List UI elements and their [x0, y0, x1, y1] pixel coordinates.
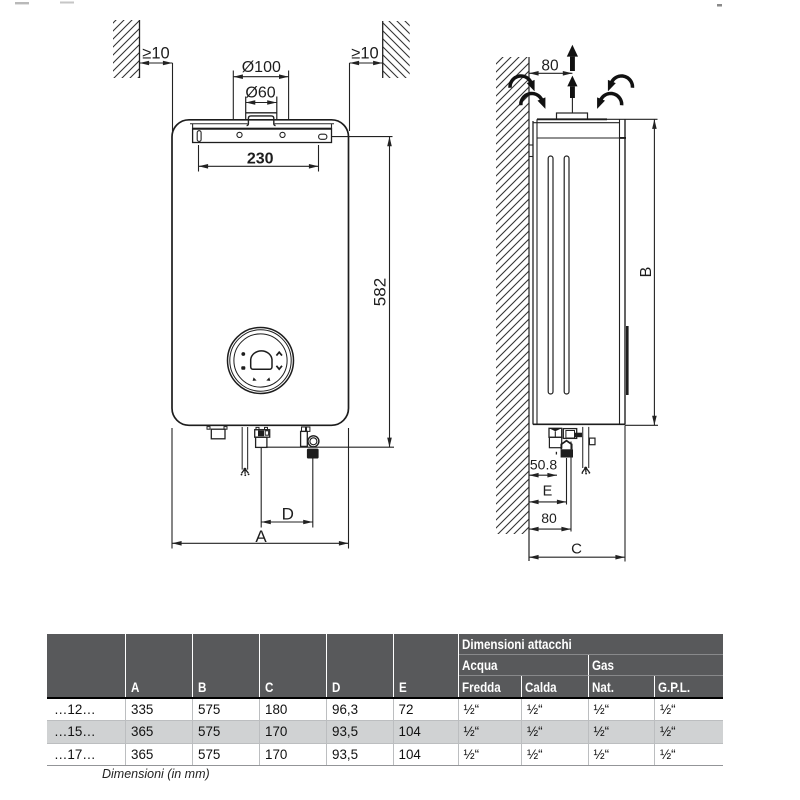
svg-text:E: E — [543, 484, 553, 500]
svg-text:B: B — [638, 267, 655, 278]
svg-text:A: A — [255, 527, 267, 546]
svg-text:D: D — [282, 505, 294, 524]
svg-text:80: 80 — [541, 57, 559, 74]
svg-text:80: 80 — [541, 510, 557, 526]
svg-text:≥10: ≥10 — [142, 45, 169, 63]
svg-text:582: 582 — [370, 278, 389, 306]
svg-text:50.8: 50.8 — [530, 456, 557, 472]
svg-text:Ø100: Ø100 — [242, 59, 281, 76]
svg-text:≥10: ≥10 — [351, 45, 378, 63]
svg-text:Ø60: Ø60 — [245, 84, 275, 101]
svg-text:C: C — [571, 541, 582, 558]
svg-text:230: 230 — [247, 151, 274, 168]
